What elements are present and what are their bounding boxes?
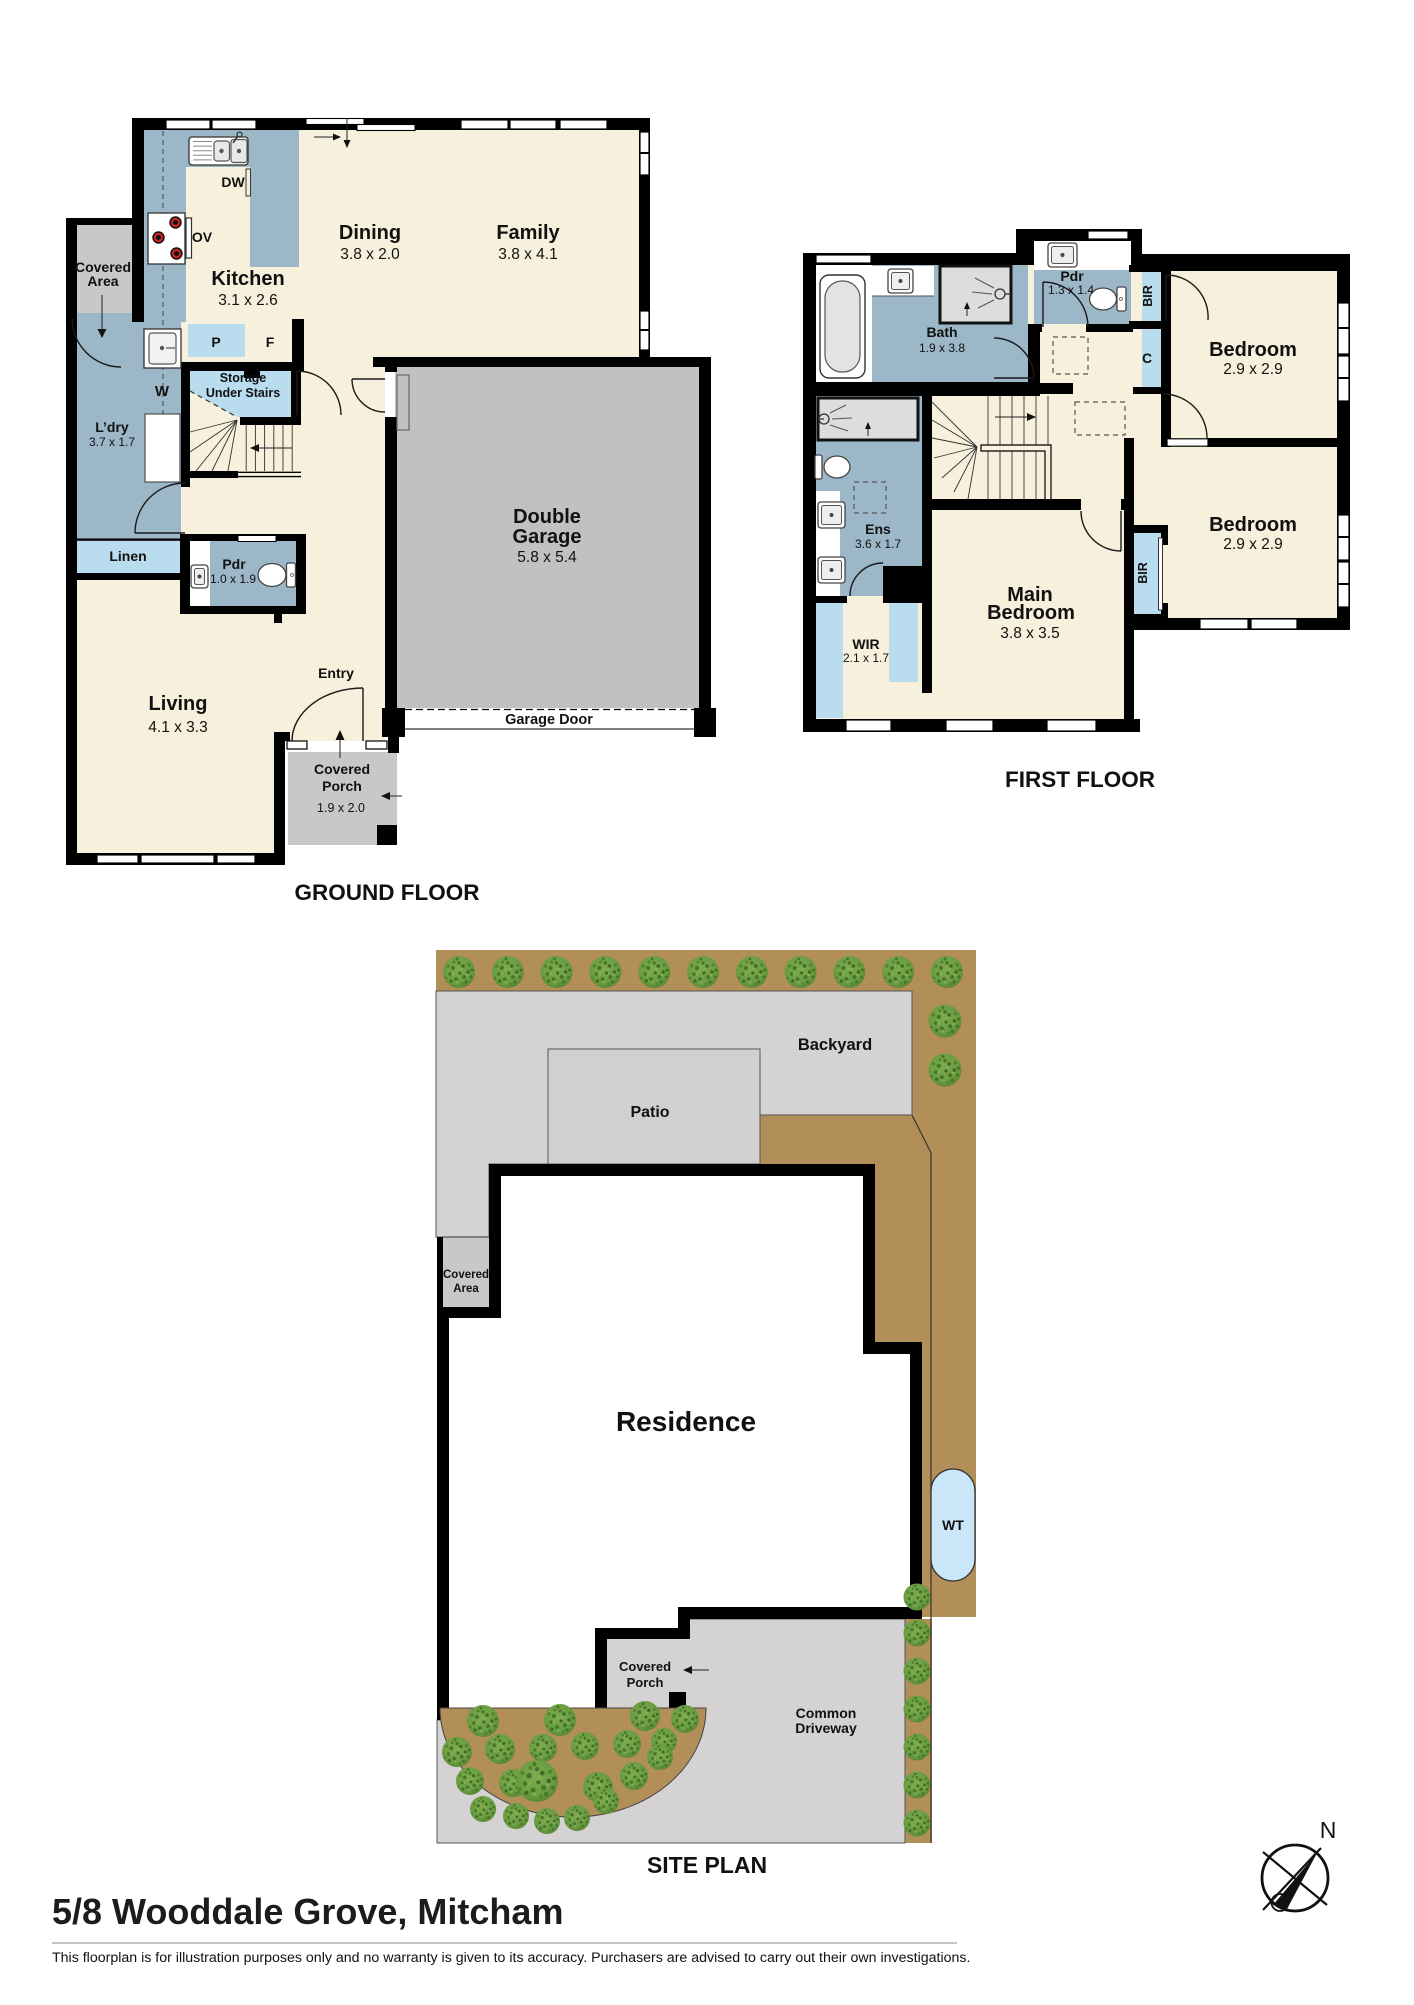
svg-text:4.1 x 3.3: 4.1 x 3.3 — [148, 719, 207, 736]
svg-text:N: N — [1320, 1817, 1337, 1843]
svg-text:Ens: Ens — [865, 521, 891, 537]
svg-text:3.7 x 1.7: 3.7 x 1.7 — [89, 435, 135, 449]
svg-text:1.0 x 1.9: 1.0 x 1.9 — [210, 572, 256, 586]
svg-text:Pdr: Pdr — [1060, 268, 1084, 284]
svg-text:Area: Area — [453, 1283, 479, 1295]
svg-text:F: F — [266, 334, 275, 350]
svg-text:Driveway: Driveway — [795, 1720, 857, 1736]
svg-text:1.9 x 2.0: 1.9 x 2.0 — [317, 801, 365, 815]
svg-text:Under Stairs: Under Stairs — [206, 386, 280, 400]
svg-text:C: C — [1142, 350, 1152, 366]
svg-text:Area: Area — [87, 273, 118, 289]
svg-text:3.8 x 3.5: 3.8 x 3.5 — [1000, 625, 1059, 642]
svg-text:2.9 x 2.9: 2.9 x 2.9 — [1223, 536, 1282, 553]
svg-text:OV: OV — [192, 229, 213, 245]
svg-text:W: W — [155, 383, 170, 400]
svg-text:Pdr: Pdr — [222, 556, 246, 572]
svg-text:BIR: BIR — [1141, 285, 1155, 307]
svg-text:2.9 x 2.9: 2.9 x 2.9 — [1223, 361, 1282, 378]
svg-text:Covered: Covered — [443, 1269, 489, 1281]
svg-text:Covered: Covered — [619, 1659, 671, 1674]
svg-text:FIRST FLOOR: FIRST FLOOR — [1005, 767, 1155, 792]
svg-text:Common: Common — [796, 1705, 857, 1721]
svg-text:Residence: Residence — [616, 1406, 756, 1437]
svg-text:3.8 x 4.1: 3.8 x 4.1 — [498, 246, 557, 263]
svg-text:Porch: Porch — [627, 1675, 664, 1690]
svg-text:Bedroom: Bedroom — [1209, 339, 1297, 361]
svg-text:WT: WT — [942, 1517, 964, 1533]
svg-text:GROUND FLOOR: GROUND FLOOR — [295, 880, 480, 905]
svg-text:Living: Living — [149, 693, 208, 715]
svg-text:WIR: WIR — [852, 636, 879, 652]
svg-text:Bath: Bath — [926, 324, 957, 340]
svg-text:DW: DW — [221, 174, 245, 190]
svg-text:P: P — [211, 334, 220, 350]
svg-text:Family: Family — [496, 222, 560, 244]
svg-text:Porch: Porch — [322, 778, 362, 794]
svg-text:Storage: Storage — [220, 371, 267, 385]
svg-text:Entry: Entry — [318, 665, 354, 681]
svg-text:Double: Double — [513, 506, 581, 528]
svg-text:2.1 x 1.7: 2.1 x 1.7 — [843, 651, 889, 665]
svg-text:1.3 x 1.4: 1.3 x 1.4 — [1048, 283, 1094, 297]
svg-text:Covered: Covered — [314, 761, 370, 777]
svg-text:Garage: Garage — [513, 526, 582, 548]
svg-text:Dining: Dining — [339, 222, 401, 244]
svg-text:3.8 x 2.0: 3.8 x 2.0 — [340, 246, 400, 263]
svg-text:BIR: BIR — [1136, 562, 1150, 584]
svg-text:SITE PLAN: SITE PLAN — [647, 1852, 767, 1878]
svg-text:Backyard: Backyard — [798, 1036, 872, 1054]
svg-text:Bedroom: Bedroom — [987, 602, 1075, 624]
svg-text:Linen: Linen — [109, 548, 146, 564]
svg-text:Kitchen: Kitchen — [211, 268, 284, 290]
svg-text:Garage Door: Garage Door — [505, 712, 593, 728]
svg-text:5.8 x 5.4: 5.8 x 5.4 — [517, 549, 577, 566]
svg-text:3.1 x 2.6: 3.1 x 2.6 — [218, 292, 277, 309]
svg-text:L’dry: L’dry — [95, 419, 129, 435]
svg-text:1.9 x 3.8: 1.9 x 3.8 — [919, 341, 965, 355]
svg-text:This floorplan is for illustra: This floorplan is for illustration purpo… — [52, 1950, 970, 1966]
svg-text:Patio: Patio — [630, 1104, 669, 1121]
svg-text:3.6 x 1.7: 3.6 x 1.7 — [855, 537, 901, 551]
svg-text:Bedroom: Bedroom — [1209, 514, 1297, 536]
svg-text:5/8 Wooddale Grove, Mitcham: 5/8 Wooddale Grove, Mitcham — [52, 1891, 563, 1932]
